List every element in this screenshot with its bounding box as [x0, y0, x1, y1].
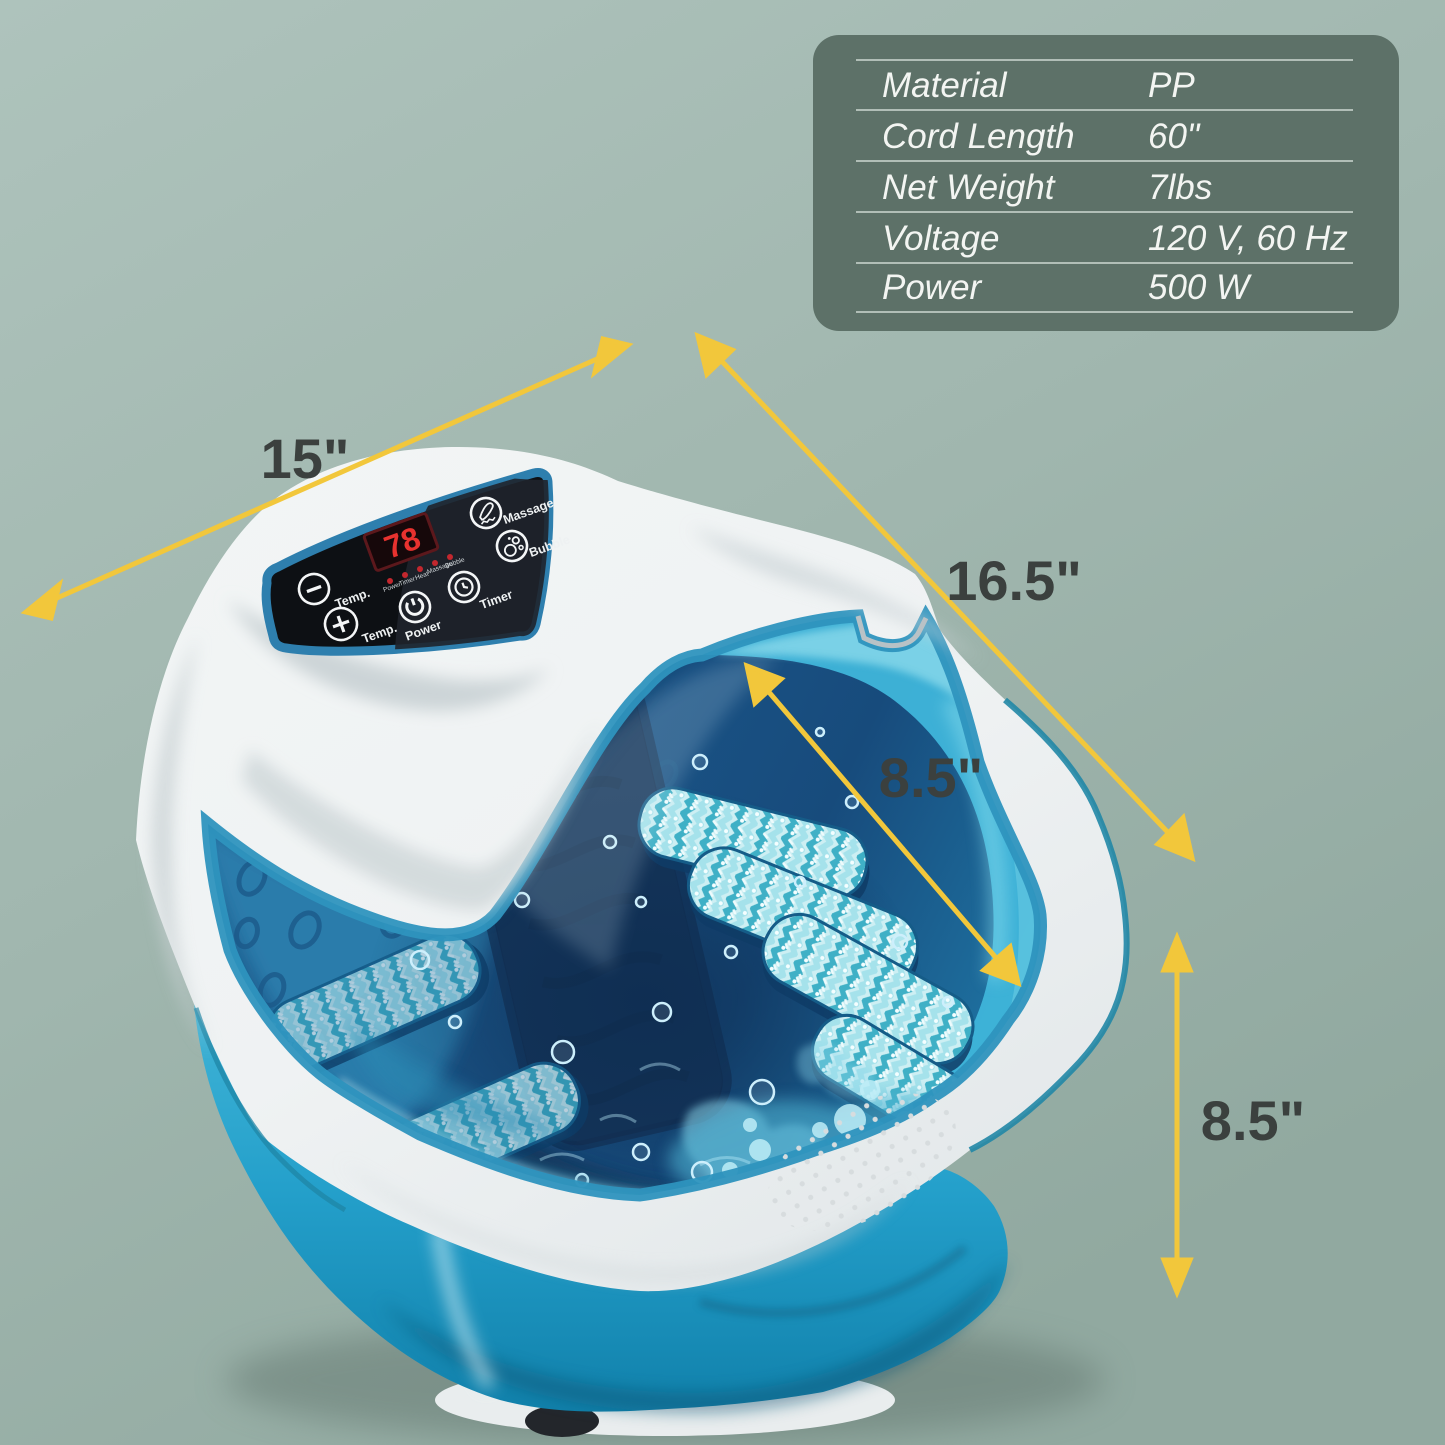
svg-text:500 W: 500 W — [1148, 268, 1252, 307]
svg-text:16.5": 16.5" — [946, 549, 1082, 612]
svg-text:Cord Length: Cord Length — [882, 117, 1075, 156]
svg-text:Material: Material — [882, 66, 1008, 105]
svg-text:15": 15" — [261, 427, 350, 490]
svg-text:60": 60" — [1148, 117, 1201, 156]
svg-text:Power: Power — [882, 268, 983, 307]
svg-text:8.5": 8.5" — [879, 746, 983, 809]
svg-text:Voltage: Voltage — [882, 219, 999, 258]
svg-text:PP: PP — [1148, 66, 1195, 105]
svg-text:7lbs: 7lbs — [1148, 168, 1212, 207]
svg-text:120 V, 60 Hz: 120 V, 60 Hz — [1148, 219, 1348, 258]
svg-text:8.5": 8.5" — [1201, 1089, 1305, 1152]
svg-text:Net Weight: Net Weight — [882, 168, 1056, 207]
